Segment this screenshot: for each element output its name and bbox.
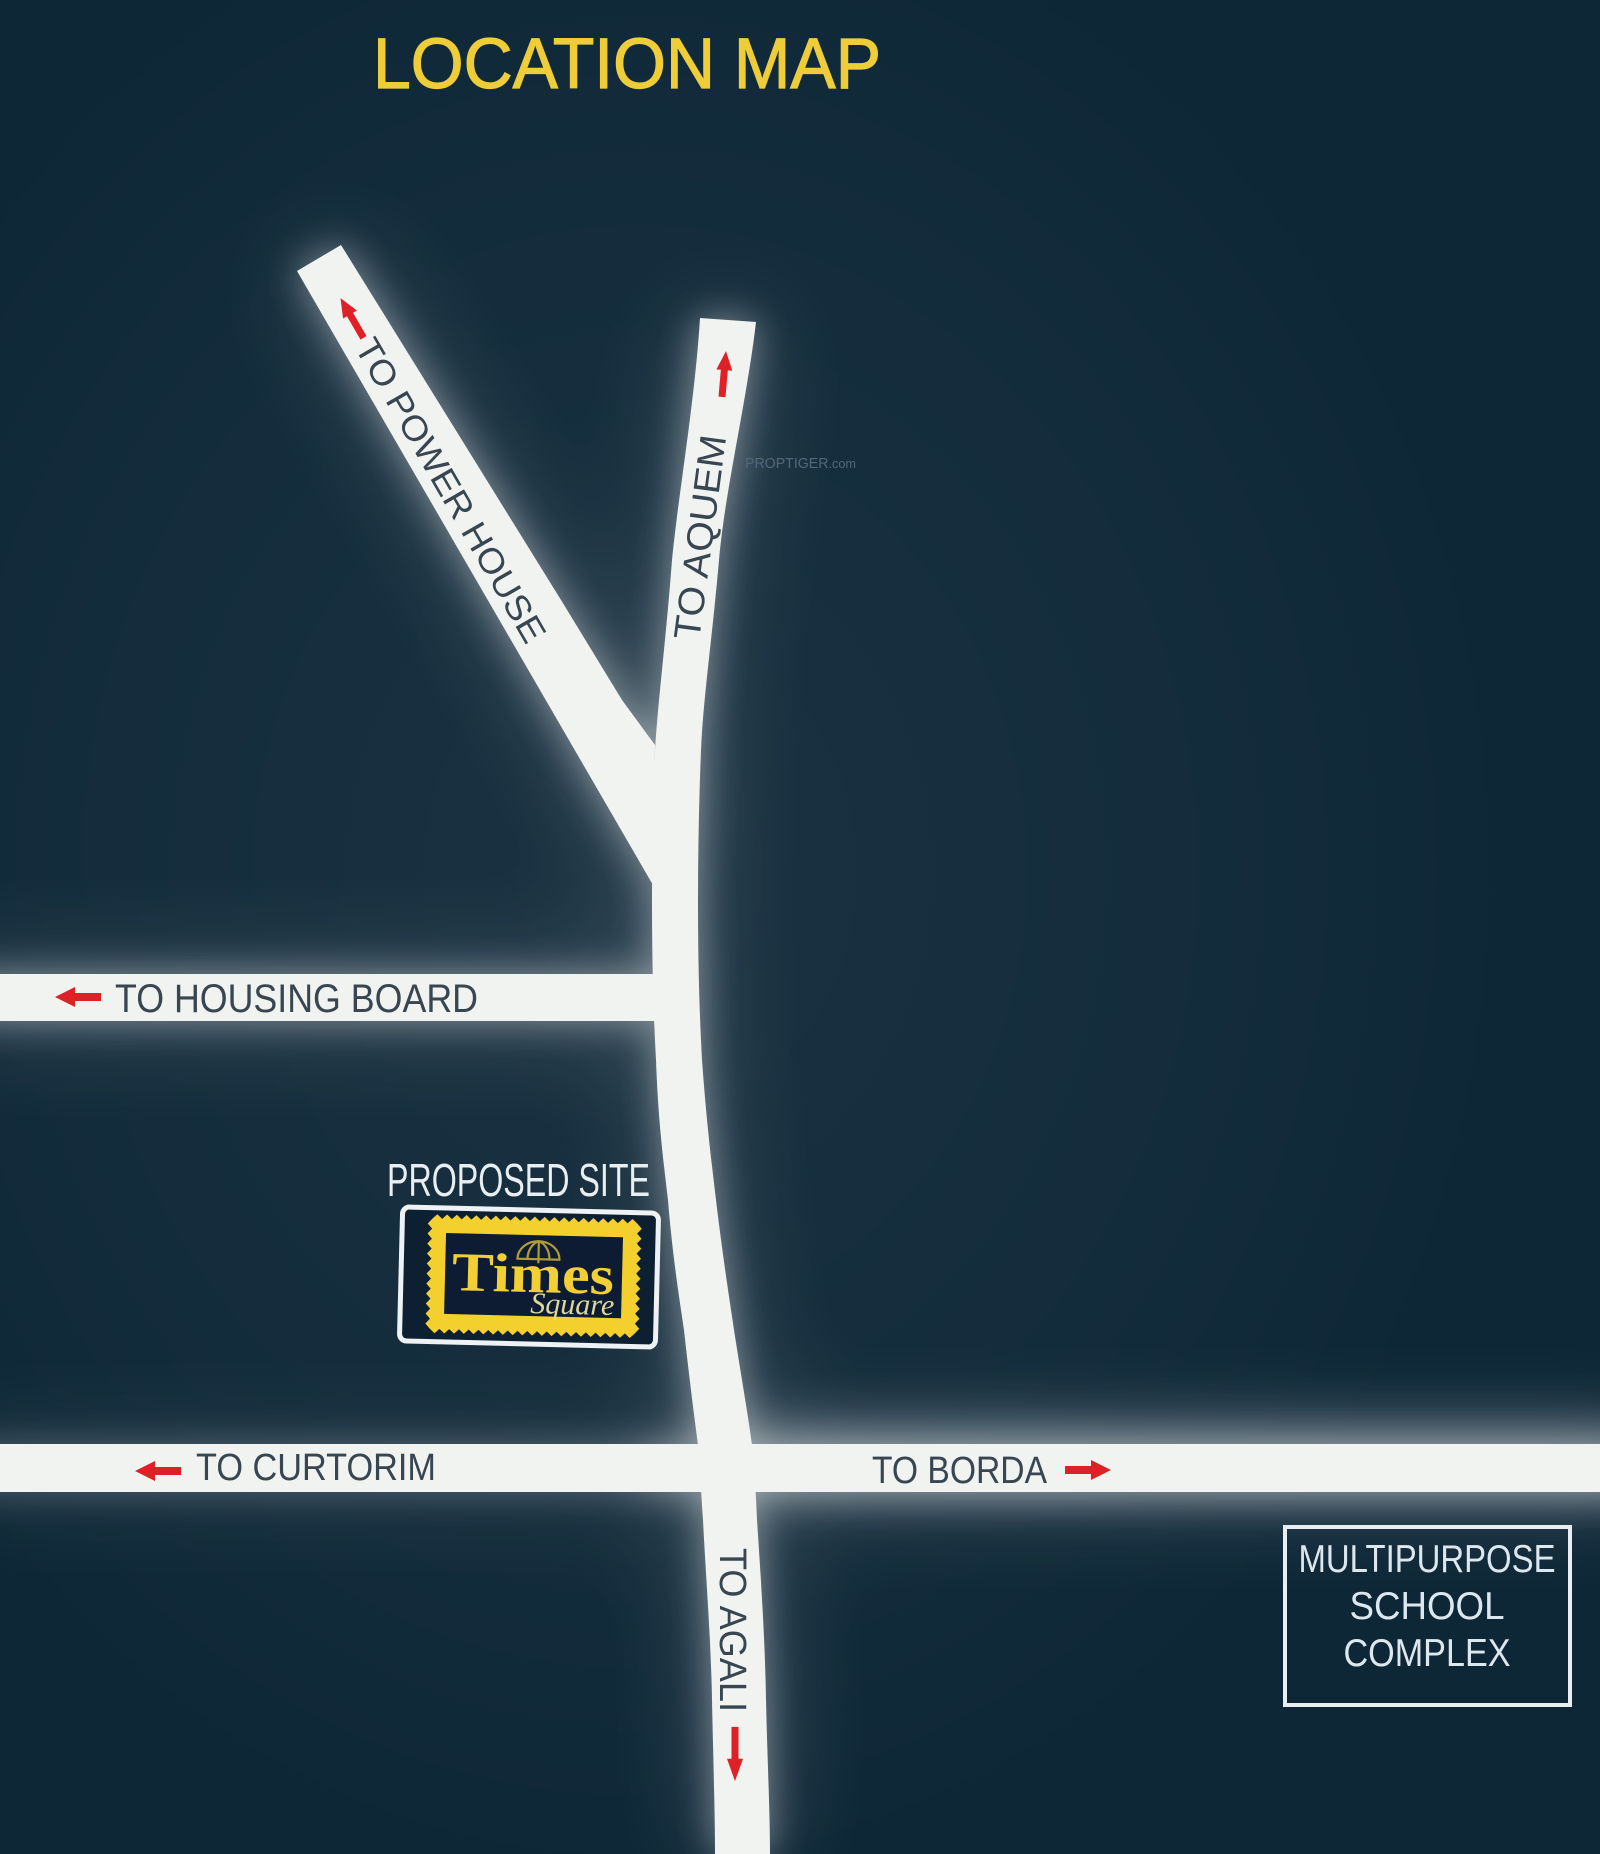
svg-text:MULTIPURPOSE: MULTIPURPOSE <box>1299 1538 1556 1581</box>
svg-text:TO BORDA: TO BORDA <box>872 1450 1048 1492</box>
svg-text:LOCATION MAP: LOCATION MAP <box>373 25 881 104</box>
svg-text:PROPOSED SITE: PROPOSED SITE <box>387 1154 650 1206</box>
svg-text:SCHOOL: SCHOOL <box>1350 1585 1505 1628</box>
svg-text:TO HOUSING BOARD: TO HOUSING BOARD <box>115 977 478 1021</box>
svg-text:COMPLEX: COMPLEX <box>1344 1632 1511 1675</box>
svg-text:PROPTIGER.com: PROPTIGER.com <box>745 456 856 472</box>
svg-text:TO AGALI: TO AGALI <box>711 1548 753 1712</box>
svg-text:TO CURTORIM: TO CURTORIM <box>196 1447 436 1489</box>
svg-text:Square: Square <box>530 1287 615 1322</box>
